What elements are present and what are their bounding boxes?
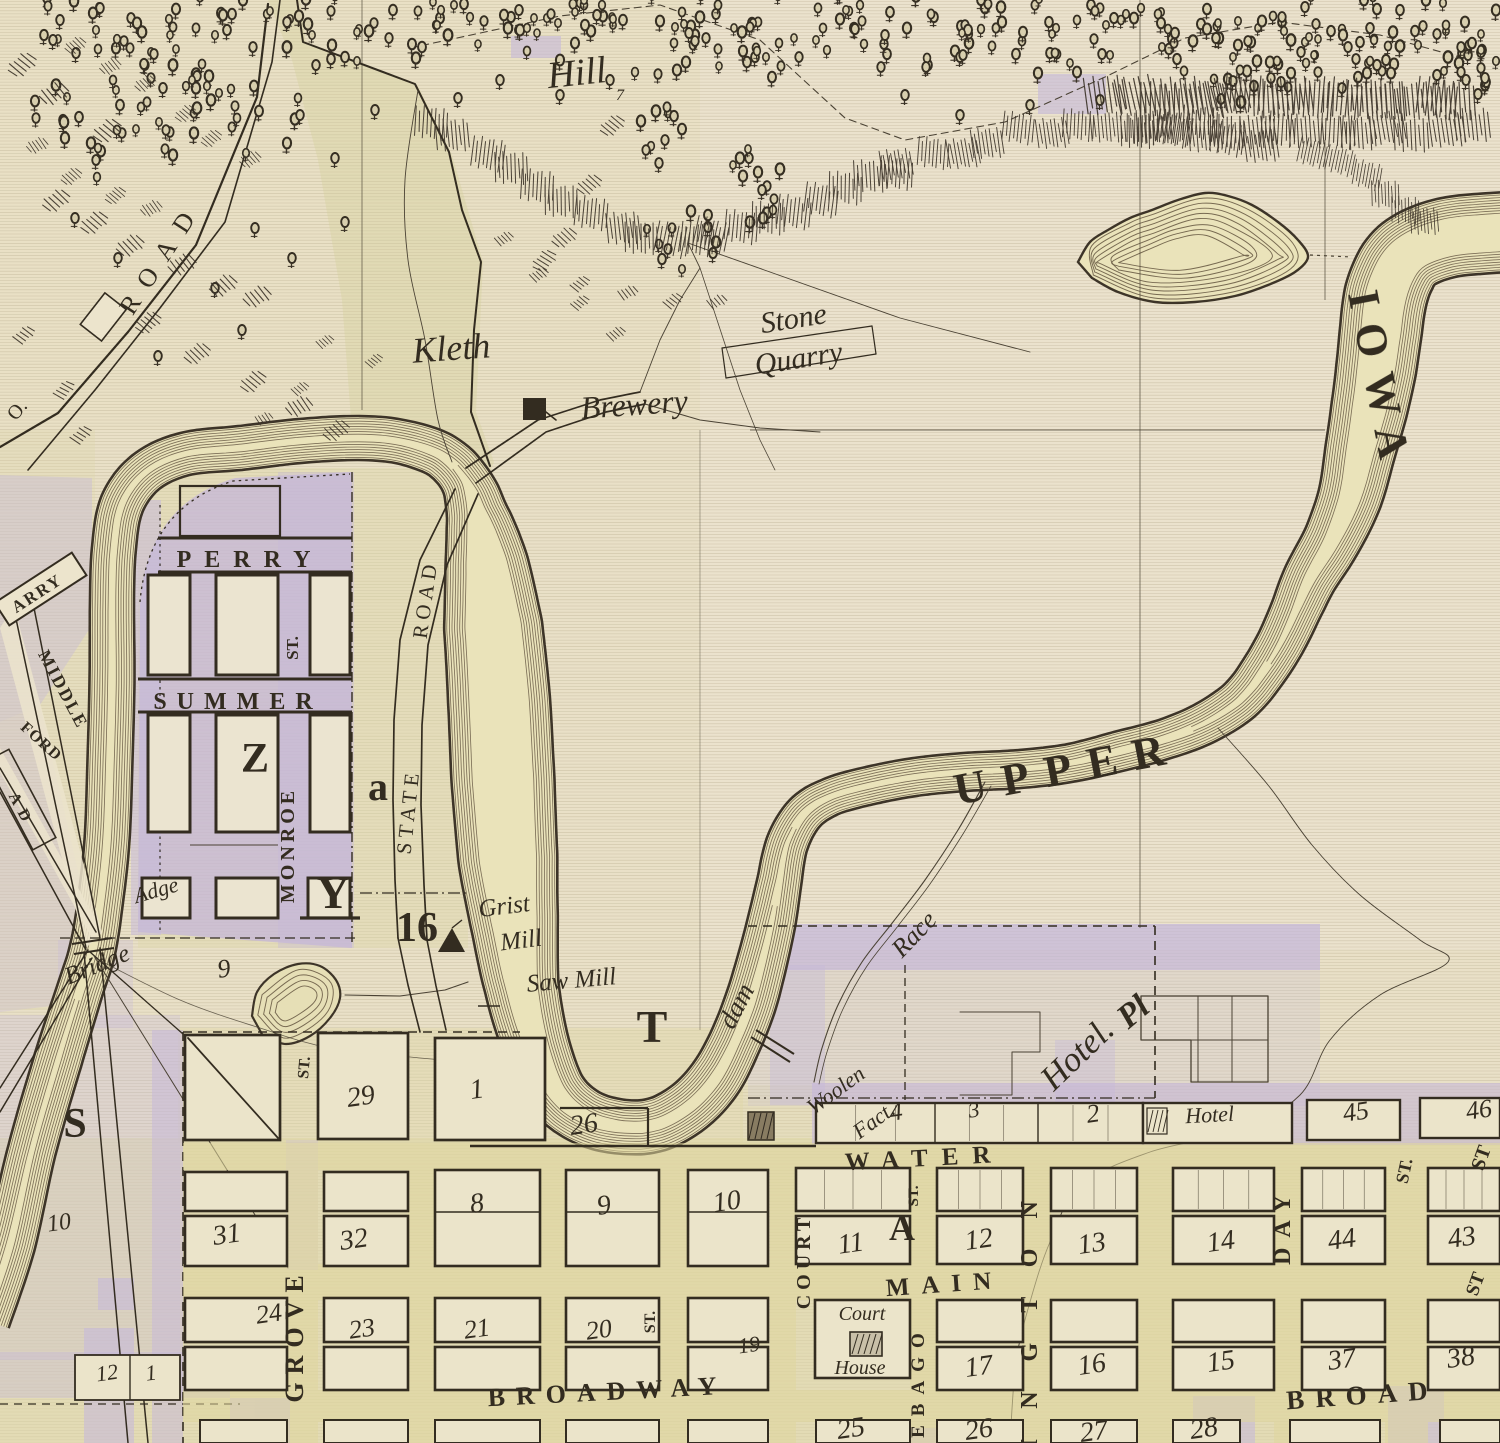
svg-text:WASHINGTON: WASHINGTON xyxy=(1017,1171,1043,1443)
svg-text:16: 16 xyxy=(1076,1347,1108,1382)
svg-text:A: A xyxy=(889,1208,915,1248)
svg-text:MONROE: MONROE xyxy=(277,787,299,903)
svg-text:COURT: COURT xyxy=(793,1213,815,1310)
svg-text:GROVE: GROVE xyxy=(280,1267,309,1402)
svg-text:43: 43 xyxy=(1446,1220,1478,1255)
svg-text:S: S xyxy=(63,1101,86,1147)
svg-text:DAY: DAY xyxy=(1270,1185,1296,1265)
svg-text:ST.: ST. xyxy=(283,636,302,660)
svg-text:46: 46 xyxy=(1464,1093,1494,1125)
svg-text:10: 10 xyxy=(711,1184,743,1219)
svg-text:31: 31 xyxy=(210,1217,243,1252)
svg-text:14: 14 xyxy=(1205,1224,1237,1259)
svg-text:21: 21 xyxy=(462,1312,492,1344)
svg-text:32: 32 xyxy=(337,1222,370,1257)
svg-text:25: 25 xyxy=(835,1411,867,1443)
svg-text:20: 20 xyxy=(584,1313,614,1345)
svg-text:Hill: Hill xyxy=(544,49,608,97)
svg-text:23: 23 xyxy=(347,1312,377,1344)
svg-text:27: 27 xyxy=(1078,1414,1111,1443)
svg-text:10: 10 xyxy=(45,1209,72,1238)
svg-text:SUMMER: SUMMER xyxy=(153,689,322,715)
svg-text:Court: Court xyxy=(839,1303,886,1325)
svg-text:ST.: ST. xyxy=(295,1056,314,1080)
svg-text:15: 15 xyxy=(1205,1344,1237,1379)
svg-text:Z: Z xyxy=(241,736,269,782)
svg-text:16: 16 xyxy=(396,905,438,951)
svg-text:Hotel: Hotel xyxy=(1184,1101,1235,1129)
svg-text:17: 17 xyxy=(963,1349,996,1384)
svg-text:Y: Y xyxy=(316,867,349,918)
svg-text:12: 12 xyxy=(963,1222,995,1257)
svg-text:28: 28 xyxy=(1188,1411,1220,1443)
svg-text:Mill: Mill xyxy=(498,925,544,957)
svg-text:24: 24 xyxy=(254,1297,284,1329)
svg-text:ST.: ST. xyxy=(906,1185,922,1206)
svg-text:Kleth: Kleth xyxy=(410,325,492,370)
svg-text:44: 44 xyxy=(1326,1222,1358,1257)
svg-text:26: 26 xyxy=(568,1107,600,1142)
svg-text:House: House xyxy=(833,1357,885,1379)
svg-text:ST.: ST. xyxy=(642,1311,659,1333)
svg-text:7: 7 xyxy=(616,87,625,104)
svg-text:12: 12 xyxy=(94,1359,119,1387)
svg-text:Brewery: Brewery xyxy=(579,382,689,425)
svg-text:13: 13 xyxy=(1076,1226,1108,1261)
svg-text:29: 29 xyxy=(345,1079,377,1114)
svg-text:37: 37 xyxy=(1325,1342,1359,1377)
svg-text:a: a xyxy=(368,764,388,809)
svg-text:T: T xyxy=(637,1001,668,1052)
svg-text:WINNEBAGO: WINNEBAGO xyxy=(908,1324,929,1443)
svg-text:38: 38 xyxy=(1444,1340,1477,1375)
svg-text:19: 19 xyxy=(736,1331,761,1359)
svg-text:26: 26 xyxy=(963,1412,995,1443)
svg-text:11: 11 xyxy=(836,1226,866,1260)
svg-text:PERRY: PERRY xyxy=(177,547,324,573)
svg-text:45: 45 xyxy=(1341,1095,1371,1127)
